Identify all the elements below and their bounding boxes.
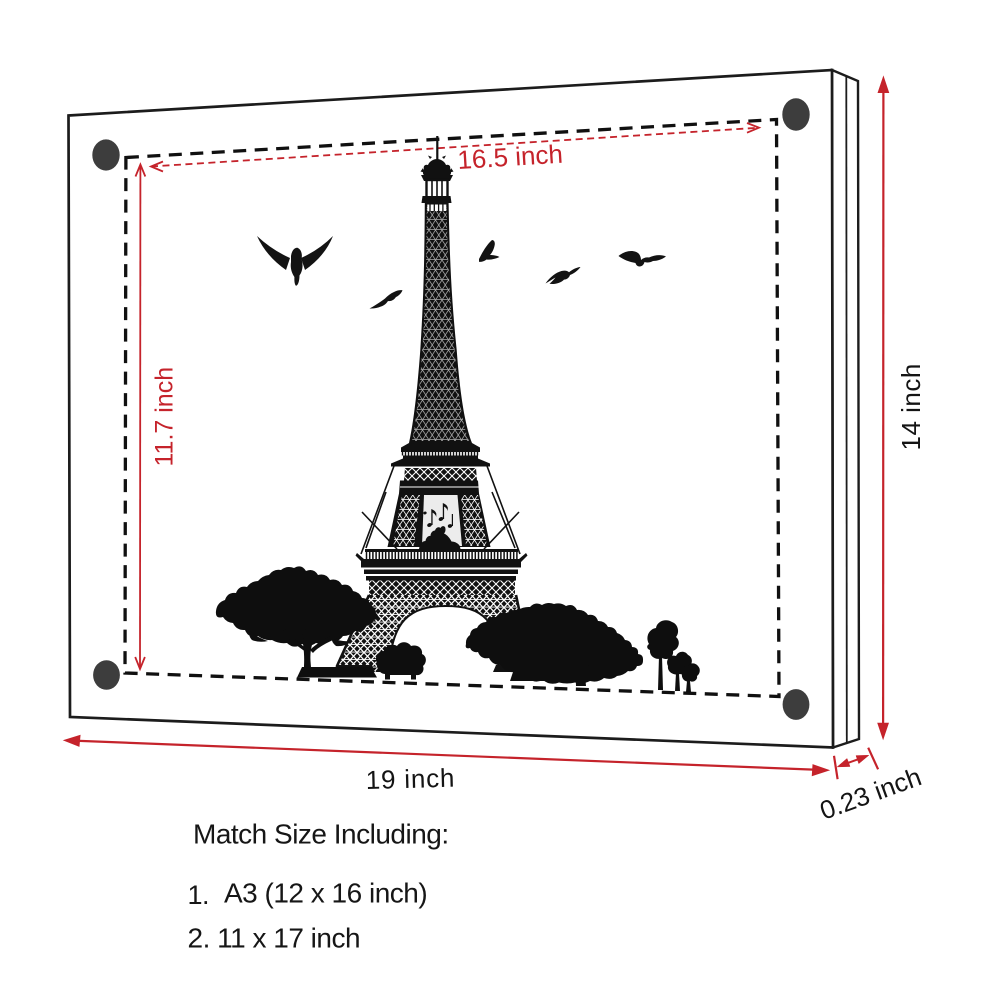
svg-text:1.: 1. [188, 880, 210, 910]
svg-text:11.7 inch: 11.7 inch [151, 367, 179, 467]
svg-text:2. 11 x 17 inch: 2. 11 x 17 inch [188, 923, 361, 954]
svg-text:19 inch: 19 inch [365, 763, 455, 795]
svg-text:Match Size Including:: Match Size Including: [193, 819, 449, 850]
svg-text:A3 (12 x 16 inch): A3 (12 x 16 inch) [224, 878, 427, 909]
svg-text:0.23 inch: 0.23 inch [816, 761, 925, 825]
svg-text:14 inch: 14 inch [896, 363, 926, 450]
